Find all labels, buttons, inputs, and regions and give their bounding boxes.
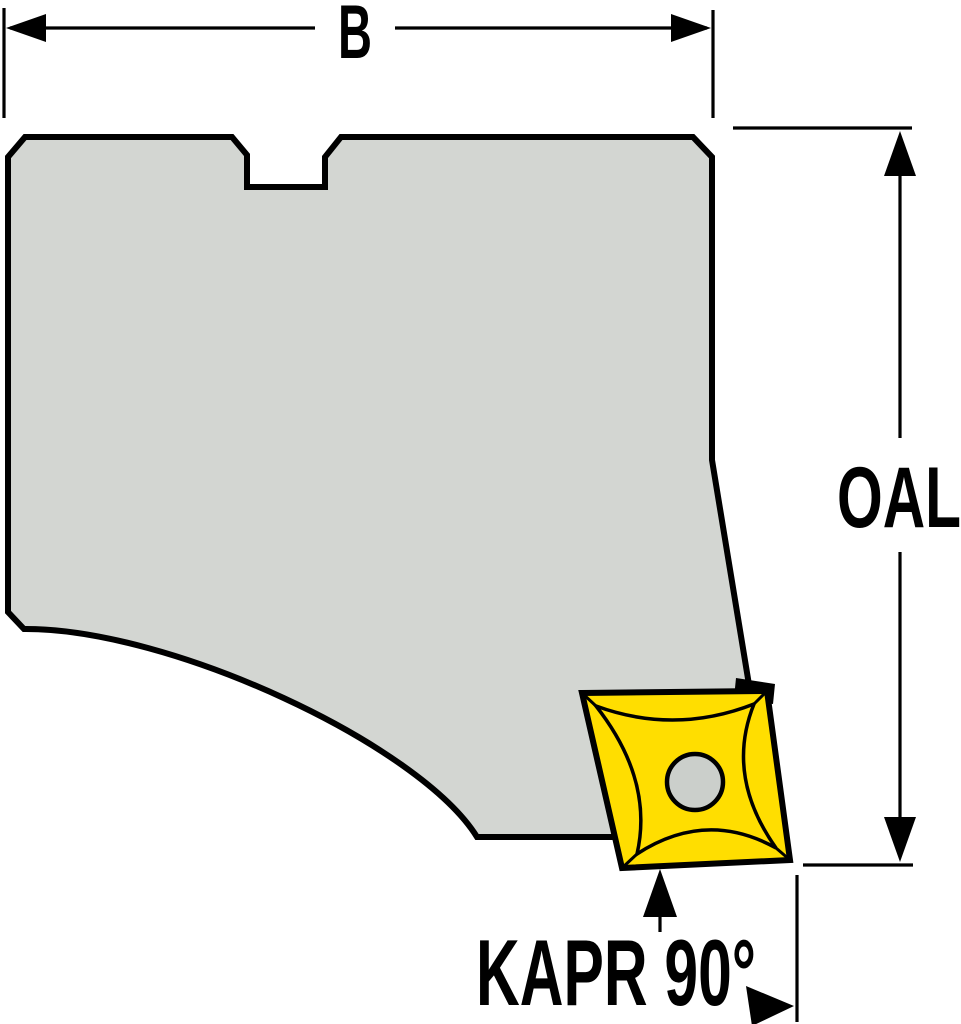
- insert-screw-hole: [667, 754, 723, 810]
- kapr-label: KAPR 90°: [476, 920, 756, 1024]
- b-label: B: [338, 0, 372, 75]
- oal-arrow-down-icon: [884, 817, 916, 862]
- b-arrow-right-icon: [671, 14, 711, 42]
- kapr-arrow-up-icon: [643, 869, 677, 917]
- insert: [582, 691, 790, 868]
- oal-label: OAL: [837, 450, 961, 546]
- tool-cartridge-drawing: B OAL KAPR 90°: [0, 0, 961, 1024]
- oal-arrow-up-icon: [884, 131, 916, 176]
- b-arrow-left-icon: [6, 14, 46, 42]
- diagram-canvas: B OAL KAPR 90°: [0, 0, 961, 1024]
